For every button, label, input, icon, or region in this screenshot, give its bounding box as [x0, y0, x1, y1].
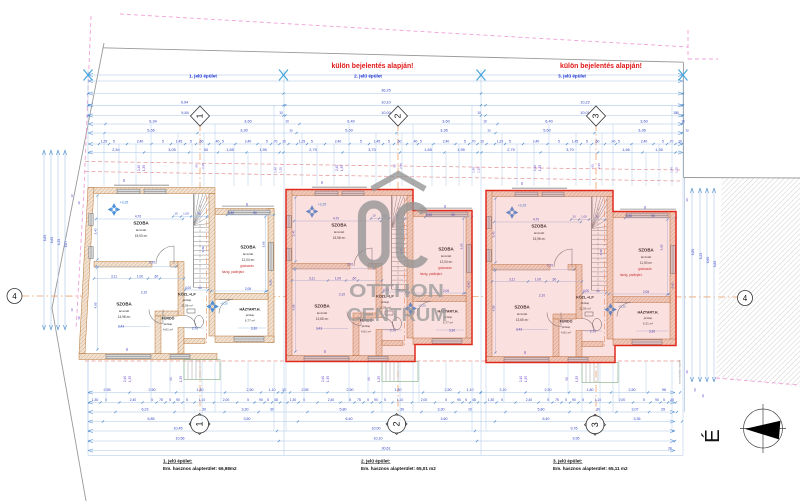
svg-text:5: 5: [267, 398, 269, 402]
svg-text:1,95: 1,95: [457, 148, 464, 152]
svg-text:5: 5: [618, 139, 620, 143]
svg-text:30: 30: [701, 394, 705, 398]
svg-text:5: 5: [169, 398, 171, 402]
svg-text:1,10: 1,10: [595, 398, 602, 402]
svg-text:5,80: 5,80: [340, 407, 347, 411]
svg-text:90: 90: [253, 211, 257, 215]
svg-text:96: 96: [662, 388, 666, 392]
svg-text:10: 10: [282, 388, 286, 392]
svg-text:10,10: 10,10: [374, 436, 383, 440]
svg-text:6,80: 6,80: [691, 249, 695, 256]
svg-text:2,70: 2,70: [192, 327, 198, 331]
svg-text:4,00: 4,00: [185, 286, 191, 290]
svg-text:5: 5: [643, 398, 645, 402]
svg-text:5: 5: [663, 398, 665, 402]
svg-text:2,40: 2,40: [137, 165, 141, 171]
svg-text:48: 48: [472, 398, 476, 402]
svg-text:30: 30: [270, 407, 274, 411]
svg-text:30: 30: [685, 370, 689, 374]
svg-text:4: 4: [743, 294, 748, 303]
svg-text:90: 90: [643, 206, 647, 210]
svg-text:30: 30: [289, 128, 293, 132]
svg-text:90: 90: [443, 205, 447, 209]
svg-text:2. jelű épület: 2. jelű épület: [354, 74, 382, 79]
svg-text:2,50: 2,50: [347, 388, 354, 392]
svg-text:60: 60: [195, 164, 199, 168]
svg-text:3. jelű épület:: 3. jelű épület:: [553, 459, 583, 464]
svg-text:3: 3: [590, 422, 600, 427]
svg-text:10,22: 10,22: [580, 101, 590, 105]
svg-text:3,60: 3,60: [244, 417, 251, 421]
svg-text:1,35: 1,35: [340, 165, 344, 171]
svg-text:2,79: 2,79: [507, 148, 514, 152]
svg-text:SZOBA: SZOBA: [116, 302, 132, 307]
svg-text:1: 1: [195, 113, 205, 118]
svg-text:2: 2: [392, 421, 402, 426]
svg-text:2,25: 2,25: [201, 163, 205, 169]
svg-text:90: 90: [367, 377, 371, 381]
svg-text:3. jelű épület: 3. jelű épület: [558, 74, 586, 79]
svg-text:1,10: 1,10: [269, 388, 276, 392]
svg-text:2,50: 2,50: [247, 388, 254, 392]
svg-text:60: 60: [591, 164, 595, 168]
svg-text:8,35: 8,35: [57, 239, 61, 246]
svg-text:6,85: 6,85: [148, 417, 155, 421]
svg-text:4,39: 4,39: [201, 246, 205, 252]
svg-text:2,40: 2,40: [130, 398, 137, 402]
svg-text:30: 30: [202, 407, 206, 411]
svg-text:2,10: 2,10: [141, 291, 147, 295]
svg-text:3,36: 3,36: [634, 417, 641, 421]
svg-text:5: 5: [349, 398, 351, 402]
svg-text:8,67: 8,67: [64, 241, 68, 248]
svg-text:1,45: 1,45: [176, 139, 183, 143]
svg-text:2,40: 2,40: [245, 139, 252, 143]
svg-text:2,00: 2,00: [619, 398, 626, 402]
svg-text:48: 48: [274, 398, 278, 402]
svg-text:6,34: 6,34: [149, 119, 156, 123]
svg-text:10: 10: [285, 119, 289, 123]
svg-text:1,30: 1,30: [488, 398, 495, 402]
svg-text:,60: ,60: [397, 139, 402, 143]
svg-text:3,70: 3,70: [368, 148, 375, 152]
svg-text:3,07: 3,07: [632, 407, 639, 411]
svg-text:5: 5: [190, 139, 192, 143]
svg-text:5: 5: [360, 139, 362, 143]
svg-text:3,30: 3,30: [251, 327, 257, 331]
svg-text:1,35: 1,35: [142, 165, 146, 171]
svg-text:90: 90: [122, 179, 126, 183]
svg-text:2,40: 2,40: [533, 139, 540, 143]
svg-text:3,36: 3,36: [638, 128, 645, 132]
svg-text:30: 30: [197, 212, 201, 216]
svg-text:1,80: 1,80: [587, 388, 594, 392]
svg-text:+3,20: +3,20: [220, 302, 228, 306]
svg-text:1,65: 1,65: [424, 148, 431, 152]
svg-text:60: 60: [204, 148, 208, 152]
svg-text:2,50: 2,50: [149, 388, 156, 392]
svg-text:6,60: 6,60: [706, 257, 710, 264]
svg-text:5: 5: [388, 139, 390, 143]
svg-text:,40: ,40: [215, 139, 220, 143]
svg-text:1,65: 1,65: [226, 148, 233, 152]
svg-text:5: 5: [151, 398, 153, 402]
svg-text:2,40: 2,40: [123, 376, 127, 382]
svg-text:5: 5: [445, 398, 447, 402]
svg-text:3,70: 3,70: [149, 261, 155, 265]
svg-text:2,40: 2,40: [335, 139, 342, 143]
svg-text:,70: ,70: [471, 139, 476, 143]
svg-text:1: 1: [195, 421, 205, 426]
svg-text:2,40: 2,40: [533, 165, 537, 171]
svg-text:,40: ,40: [413, 139, 418, 143]
svg-text:90: 90: [520, 182, 524, 186]
svg-text:laminált: laminált: [119, 309, 130, 313]
svg-text:10,45: 10,45: [174, 426, 183, 430]
svg-text:3,60: 3,60: [640, 119, 647, 123]
svg-text:1,00: 1,00: [183, 212, 189, 216]
svg-text:3,30: 3,30: [242, 407, 249, 411]
svg-text:90: 90: [572, 398, 576, 402]
svg-text:1,29: 1,29: [497, 139, 504, 143]
svg-text:3,30: 3,30: [240, 128, 247, 132]
svg-text:5: 5: [464, 139, 466, 143]
svg-text:1,00: 1,00: [137, 275, 143, 279]
svg-text:9,94: 9,94: [181, 101, 188, 105]
svg-text:,70: ,70: [669, 139, 674, 143]
svg-text:HÁZTART.H.: HÁZTART.H.: [240, 307, 261, 312]
svg-text:1,40: 1,40: [670, 167, 674, 173]
svg-text:2,50: 2,50: [629, 388, 636, 392]
svg-text:járólap: járólap: [182, 298, 192, 302]
svg-text:1,35: 1,35: [575, 376, 579, 382]
svg-text:2: 2: [393, 113, 403, 118]
svg-text:SZOBA: SZOBA: [240, 245, 256, 250]
svg-text:1,30: 1,30: [290, 398, 297, 402]
svg-text:2,54: 2,54: [112, 148, 119, 152]
svg-text:2,40: 2,40: [321, 376, 325, 382]
svg-text:3,43: 3,43: [118, 325, 124, 329]
svg-text:+3,25: +3,25: [120, 201, 129, 205]
svg-text:75: 75: [357, 398, 361, 402]
svg-text:Em. hasznos alapterület: 65,01: Em. hasznos alapterület: 65,01 m2: [361, 466, 436, 471]
svg-text:9,85: 9,85: [713, 261, 717, 268]
svg-text:11,56 m²: 11,56 m²: [181, 304, 193, 308]
svg-text:szomszédos épület: szomszédos épület: [678, 360, 682, 384]
svg-text:5: 5: [509, 139, 511, 143]
svg-text:1,10: 1,10: [467, 388, 474, 392]
svg-text:1,35: 1,35: [326, 376, 330, 382]
svg-text:30: 30: [685, 128, 689, 132]
svg-text:30: 30: [400, 407, 404, 411]
svg-text:5,80: 5,80: [538, 407, 545, 411]
svg-text:10: 10: [480, 139, 484, 143]
svg-text:járólap: járólap: [163, 322, 173, 326]
svg-text:2,40: 2,40: [328, 398, 335, 402]
svg-text:12,04 m²: 12,04 m²: [242, 258, 255, 262]
svg-text:15,93 m²: 15,93 m²: [135, 234, 148, 238]
svg-text:6,40: 6,40: [543, 417, 550, 421]
svg-text:5: 5: [222, 139, 224, 143]
svg-text:laminált: laminált: [136, 228, 147, 232]
svg-text:10: 10: [678, 139, 682, 143]
svg-text:90: 90: [655, 398, 659, 402]
svg-text:járólap: járólap: [245, 313, 255, 317]
svg-text:,70: ,70: [273, 139, 278, 143]
svg-text:2,06: 2,06: [245, 287, 251, 291]
svg-text:5: 5: [465, 398, 467, 402]
svg-text:,60: ,60: [154, 275, 159, 279]
svg-text:3,30: 3,30: [438, 407, 445, 411]
svg-text:14,98 m²: 14,98 m²: [118, 315, 131, 319]
svg-text:3,30: 3,30: [228, 211, 234, 215]
svg-text:75: 75: [159, 398, 163, 402]
svg-text:10: 10: [70, 308, 74, 312]
svg-text:laminált: laminált: [243, 252, 254, 256]
svg-text:6,60: 6,60: [269, 279, 273, 285]
svg-text:2,40: 2,40: [519, 376, 523, 382]
svg-text:30: 30: [487, 128, 491, 132]
svg-text:6,77 m²: 6,77 m²: [245, 319, 255, 323]
svg-text:KÖZL.+LP: KÖZL.+LP: [178, 292, 196, 297]
svg-text:5: 5: [420, 139, 422, 143]
svg-text:5: 5: [558, 139, 560, 143]
svg-text:6,40: 6,40: [347, 119, 354, 123]
svg-text:90: 90: [125, 348, 129, 352]
svg-text:2,25: 2,25: [399, 163, 403, 169]
svg-text:Em. hasznos alapterület: 65,11: Em. hasznos alapterület: 65,11 m2: [553, 466, 628, 471]
svg-text:2,40: 2,40: [137, 139, 144, 143]
svg-text:5: 5: [367, 398, 369, 402]
svg-text:2. jelű épület:: 2. jelű épület:: [361, 459, 391, 464]
svg-text:10: 10: [282, 139, 286, 143]
svg-text:Em. hasznos alapterület: 66,98: Em. hasznos alapterület: 66,98m2: [163, 466, 237, 471]
svg-text:3,60: 3,60: [441, 417, 448, 421]
svg-text:2,55: 2,55: [104, 388, 111, 392]
svg-text:5: 5: [311, 139, 313, 143]
svg-text:5: 5: [266, 139, 268, 143]
svg-text:6,40: 6,40: [545, 119, 552, 123]
svg-text:90: 90: [565, 377, 569, 381]
svg-text:1. jelű épület:: 1. jelű épület:: [163, 459, 193, 464]
svg-text:gázkazán: gázkazán: [240, 264, 254, 268]
svg-text:3,70: 3,70: [566, 148, 573, 152]
svg-text:3: 3: [591, 113, 601, 118]
svg-text:külön bejelentés alapján!: külön bejelentés alapján!: [332, 63, 414, 70]
svg-text:2,40: 2,40: [335, 165, 339, 171]
svg-text:1,35: 1,35: [377, 376, 381, 382]
svg-text:10: 10: [477, 111, 481, 115]
svg-text:36,25: 36,25: [381, 89, 391, 93]
svg-text:1,35: 1,35: [179, 376, 183, 382]
svg-text:2,50: 2,50: [445, 388, 452, 392]
svg-text:5: 5: [582, 398, 584, 402]
svg-text:3,60: 3,60: [244, 119, 251, 123]
svg-text:4,61 m²: 4,61 m²: [163, 328, 173, 332]
svg-text:20: 20: [668, 446, 672, 450]
svg-text:6,40: 6,40: [346, 417, 353, 421]
svg-text:30: 30: [77, 316, 81, 320]
svg-text:90: 90: [457, 398, 461, 402]
svg-text:10,56: 10,56: [176, 436, 185, 440]
svg-text:90: 90: [169, 377, 173, 381]
svg-text:,60: ,60: [595, 139, 600, 143]
svg-text:2,40: 2,40: [443, 139, 450, 143]
svg-text:10,00: 10,00: [381, 111, 391, 115]
svg-text:1,80: 1,80: [197, 388, 204, 392]
svg-text:2,00: 2,00: [421, 398, 428, 402]
svg-text:8,85: 8,85: [43, 235, 47, 242]
svg-text:60: 60: [393, 164, 397, 168]
svg-text:5: 5: [113, 139, 115, 143]
svg-text:30,61: 30,61: [382, 446, 391, 450]
svg-text:5: 5: [162, 139, 164, 143]
svg-text:1,35: 1,35: [675, 167, 679, 173]
svg-text:1,95: 1,95: [259, 148, 266, 152]
svg-text:90: 90: [259, 398, 263, 402]
svg-text:9,84: 9,84: [181, 111, 188, 115]
svg-text:90: 90: [176, 398, 180, 402]
svg-text:5: 5: [586, 139, 588, 143]
svg-text:30: 30: [77, 201, 81, 205]
svg-text:60: 60: [693, 388, 697, 392]
svg-text:2,10: 2,10: [500, 388, 507, 392]
svg-text:10: 10: [681, 119, 685, 123]
svg-text:5: 5: [565, 398, 567, 402]
svg-text:2,00: 2,00: [223, 398, 230, 402]
svg-text:1,35: 1,35: [128, 376, 132, 382]
svg-text:1,80: 1,80: [395, 388, 402, 392]
svg-text:1,35: 1,35: [538, 165, 542, 171]
svg-text:10: 10: [279, 111, 283, 115]
svg-text:90: 90: [374, 398, 378, 402]
svg-text:90: 90: [245, 203, 249, 207]
svg-text:CENTRUM: CENTRUM: [347, 304, 447, 325]
svg-text:10,00: 10,00: [372, 426, 381, 430]
svg-text:5: 5: [384, 398, 386, 402]
svg-text:1,66: 1,66: [622, 148, 629, 152]
svg-text:4,55: 4,55: [94, 302, 98, 308]
svg-text:1,35: 1,35: [279, 167, 283, 173]
svg-text:6,23: 6,23: [699, 253, 703, 260]
svg-text:10: 10: [174, 212, 178, 216]
svg-text:2,40: 2,40: [526, 398, 533, 402]
svg-text:5: 5: [186, 398, 188, 402]
svg-text:2,50: 2,50: [545, 388, 552, 392]
svg-text:29: 29: [661, 407, 665, 411]
svg-text:90: 90: [320, 181, 324, 185]
svg-text:75: 75: [555, 398, 559, 402]
svg-text:1. jelű épület: 1. jelű épület: [189, 74, 217, 79]
svg-text:3,36: 3,36: [440, 128, 447, 132]
svg-text:8,65: 8,65: [50, 237, 54, 244]
svg-text:6,23: 6,23: [142, 407, 149, 411]
svg-text:1,45: 1,45: [374, 139, 381, 143]
svg-text:9,95: 9,95: [573, 436, 580, 440]
svg-text:10: 10: [468, 407, 472, 411]
svg-text:5: 5: [662, 139, 664, 143]
svg-text:É: É: [701, 429, 724, 443]
svg-text:1,30: 1,30: [92, 398, 99, 402]
svg-text:30: 30: [685, 198, 689, 202]
svg-text:2,55: 2,55: [302, 388, 309, 392]
svg-text:5: 5: [247, 398, 249, 402]
svg-text:60: 60: [198, 286, 202, 290]
svg-text:3,11: 3,11: [111, 275, 117, 279]
svg-text:4,70: 4,70: [135, 215, 141, 219]
svg-text:1,35: 1,35: [477, 167, 481, 173]
svg-text:4: 4: [12, 292, 17, 301]
svg-text:3,65: 3,65: [262, 241, 266, 247]
svg-text:3,05: 3,05: [168, 148, 175, 152]
svg-text:9,76: 9,76: [571, 426, 578, 430]
svg-text:30: 30: [596, 407, 600, 411]
svg-text:OTTHON: OTTHON: [349, 280, 444, 301]
svg-text:3,60: 3,60: [442, 119, 449, 123]
svg-text:3,40: 3,40: [94, 228, 98, 234]
svg-text:1,35: 1,35: [524, 376, 528, 382]
svg-text:10,10: 10,10: [381, 101, 391, 105]
svg-text:külön bejelentés alapján!: külön bejelentés alapján!: [560, 63, 642, 70]
svg-text:,60: ,60: [199, 139, 204, 143]
svg-text:FÜRDŐ: FÜRDŐ: [162, 316, 175, 321]
svg-text:10: 10: [483, 119, 487, 123]
svg-text:5: 5: [501, 398, 503, 402]
svg-text:2,25: 2,25: [597, 163, 601, 169]
svg-text:5,60: 5,60: [543, 128, 550, 132]
svg-text:házig. padlejáró: házig. padlejáró: [222, 270, 245, 274]
svg-text:10: 10: [70, 194, 74, 198]
svg-text:SZOBA: SZOBA: [133, 221, 149, 226]
svg-text:10: 10: [673, 111, 677, 115]
svg-text:1,45: 1,45: [572, 139, 579, 143]
svg-text:2,79: 2,79: [309, 148, 316, 152]
svg-text:2,40: 2,40: [641, 139, 648, 143]
